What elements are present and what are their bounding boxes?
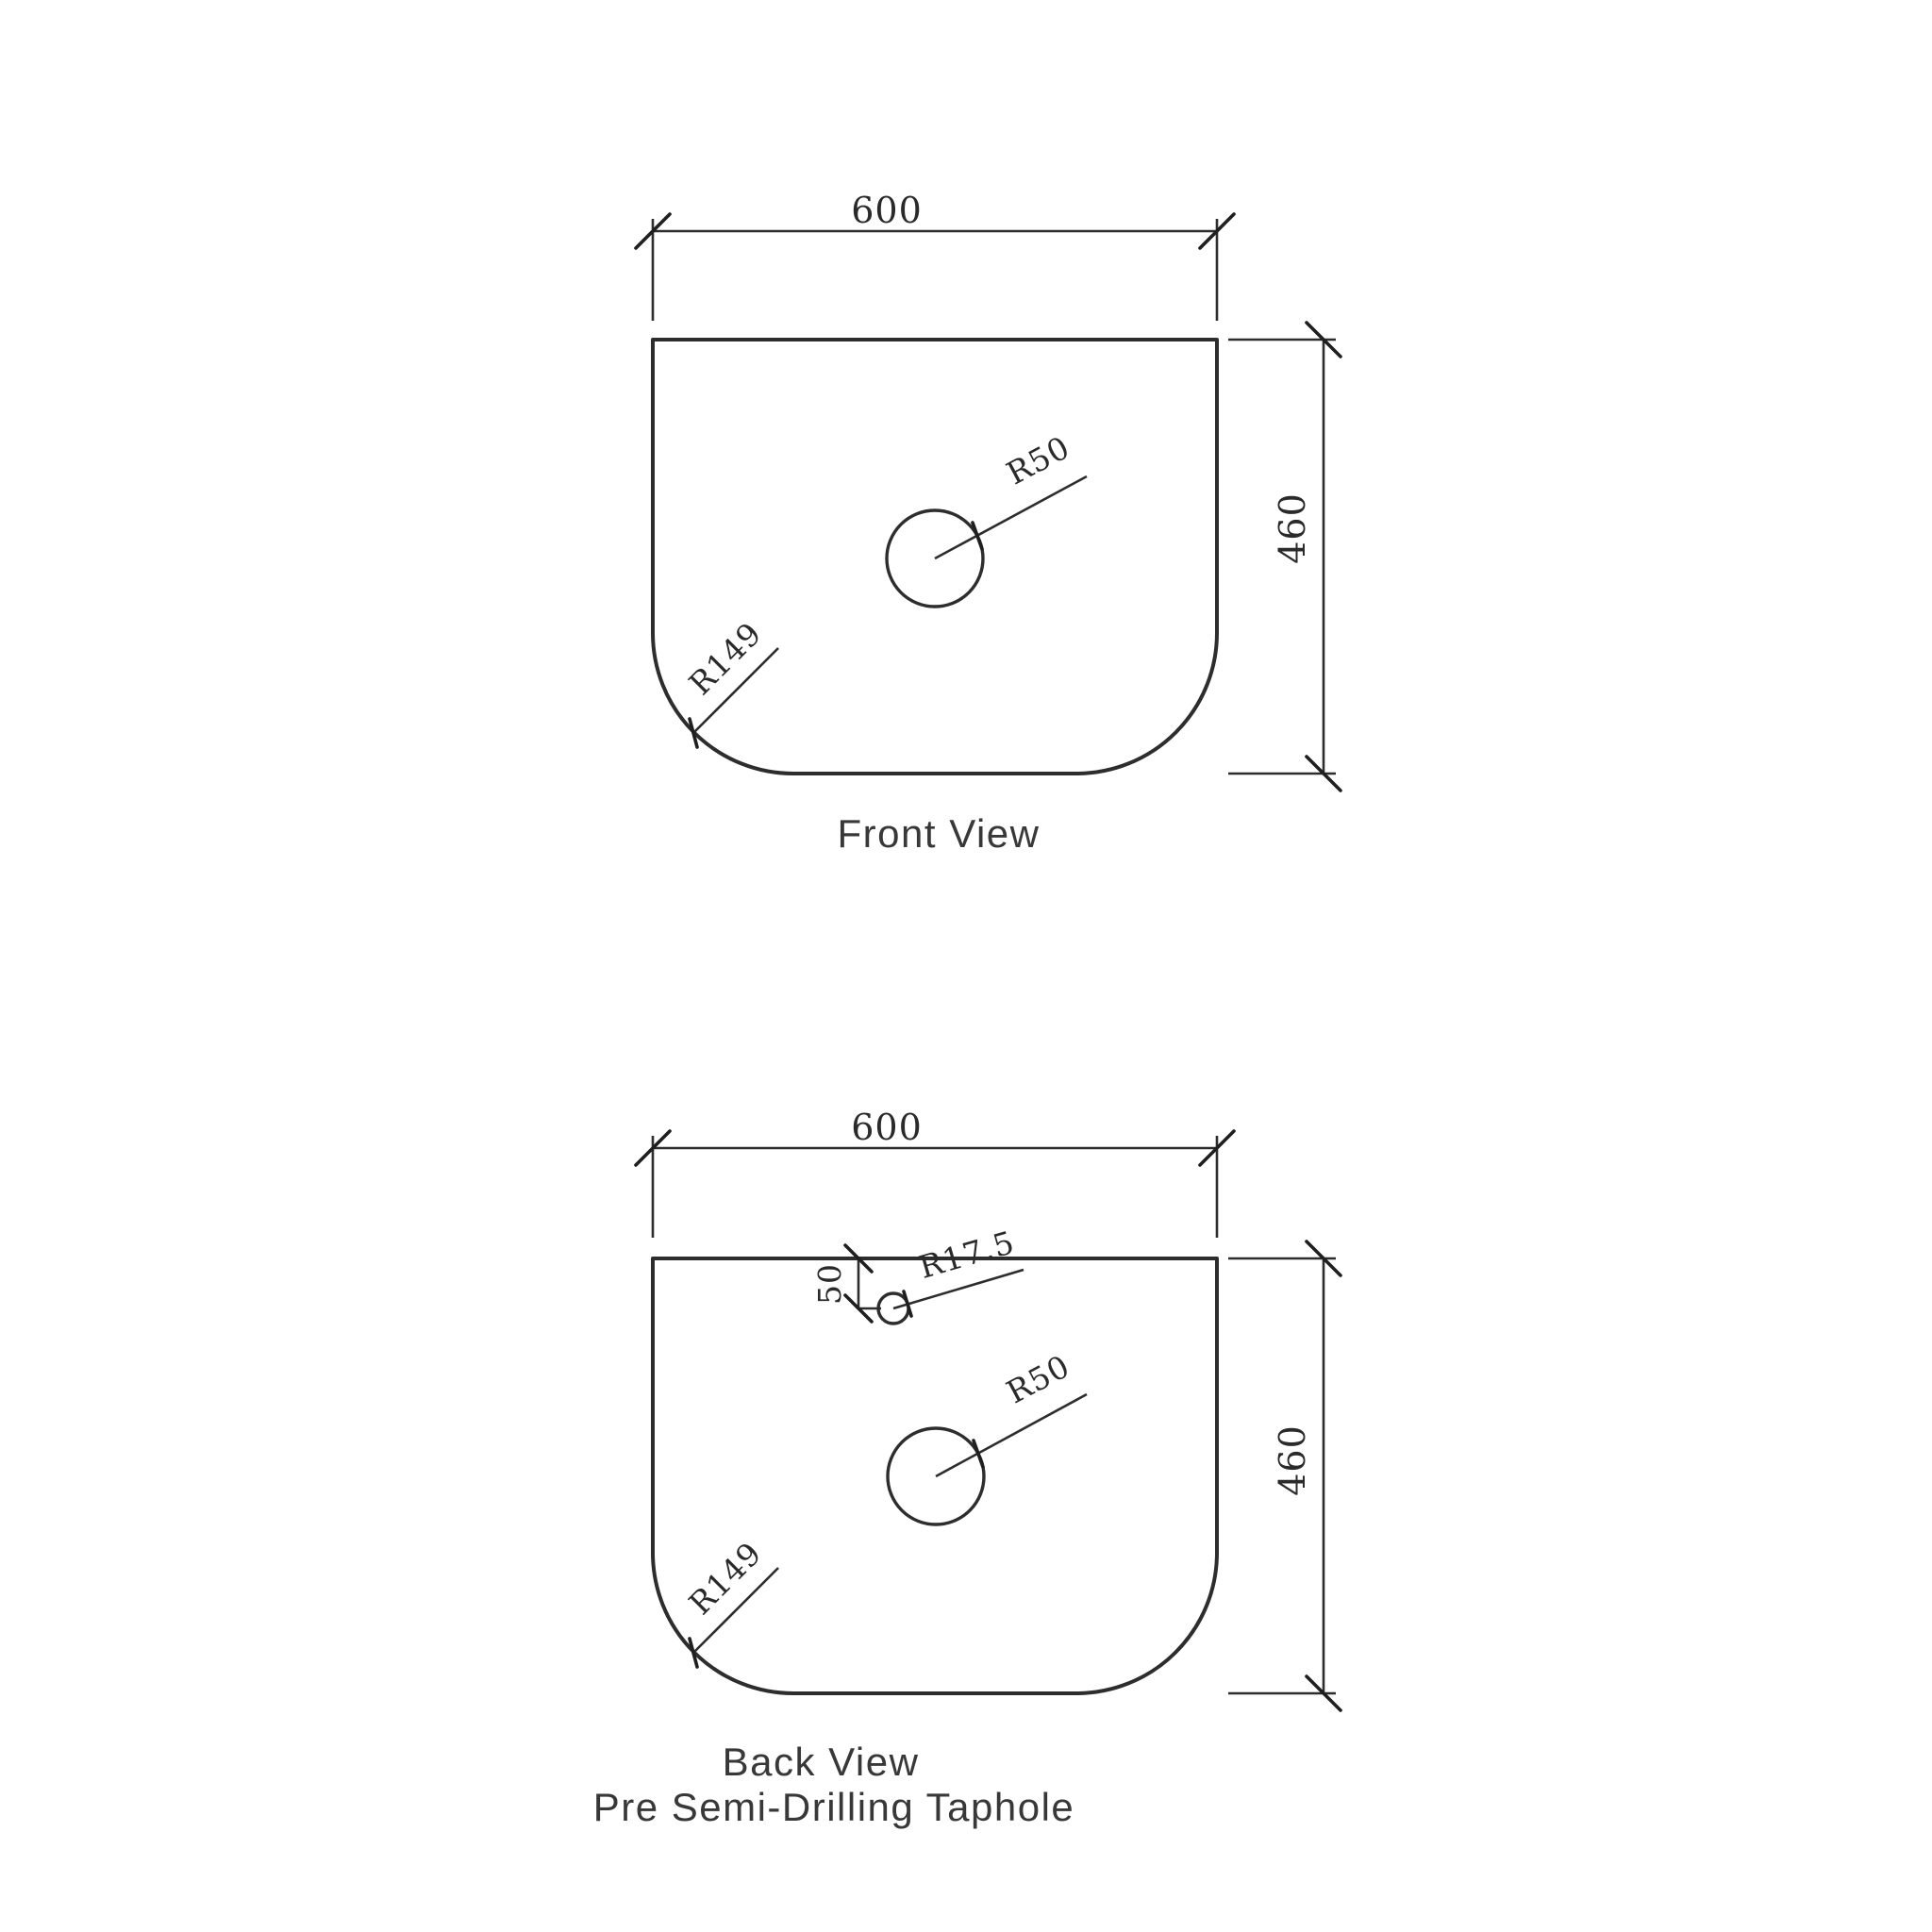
back-view-outline [653, 1258, 1217, 1693]
back-view-taphole-offset-text: 50 [811, 1263, 848, 1305]
front-view-height-dim-text: 460 [1272, 492, 1313, 564]
back-view-hole-radius-text: R50 [1001, 1347, 1076, 1410]
back-view-height-dim-text: 460 [1272, 1424, 1313, 1496]
front-view-hole-radius-text: R50 [1001, 428, 1076, 491]
back-view-caption-line2: Pre Semi-Drilling Taphole [593, 1785, 1075, 1829]
leader-tick [973, 523, 982, 549]
back-view-height-dimension: 460 [1228, 1241, 1341, 1710]
back-view-width-dim-text: 600 [851, 1107, 923, 1148]
back-view-taphole-radius-leader: R17.5 [893, 1224, 1024, 1316]
front-view-outline [653, 340, 1217, 774]
front-view-corner-radius-text: R149 [682, 615, 770, 703]
back-view-width-dimension: 600 [636, 1107, 1234, 1238]
back-view-hole-radius-leader: R50 [936, 1347, 1087, 1476]
front-view-height-dimension: 460 [1228, 323, 1341, 791]
front-view-caption: Front View [838, 811, 1041, 856]
back-view-corner-radius-text: R149 [682, 1535, 770, 1623]
back-view-caption-line1: Back View [723, 1740, 920, 1784]
front-view-width-dimension: 600 [636, 190, 1234, 321]
drawing-sheet: 600 460 R50 R149 Front View [0, 0, 1932, 1932]
back-view: 600 460 50 R17.5 R50 [593, 1107, 1341, 1829]
technical-drawing-canvas: 600 460 R50 R149 Front View [0, 0, 1932, 1932]
front-view-corner-radius-leader: R149 [682, 615, 778, 747]
front-view-hole-radius-leader: R50 [935, 428, 1087, 558]
front-view: 600 460 R50 R149 Front View [636, 190, 1341, 856]
front-view-width-dim-text: 600 [851, 190, 923, 231]
back-view-corner-radius-leader: R149 [682, 1535, 778, 1667]
